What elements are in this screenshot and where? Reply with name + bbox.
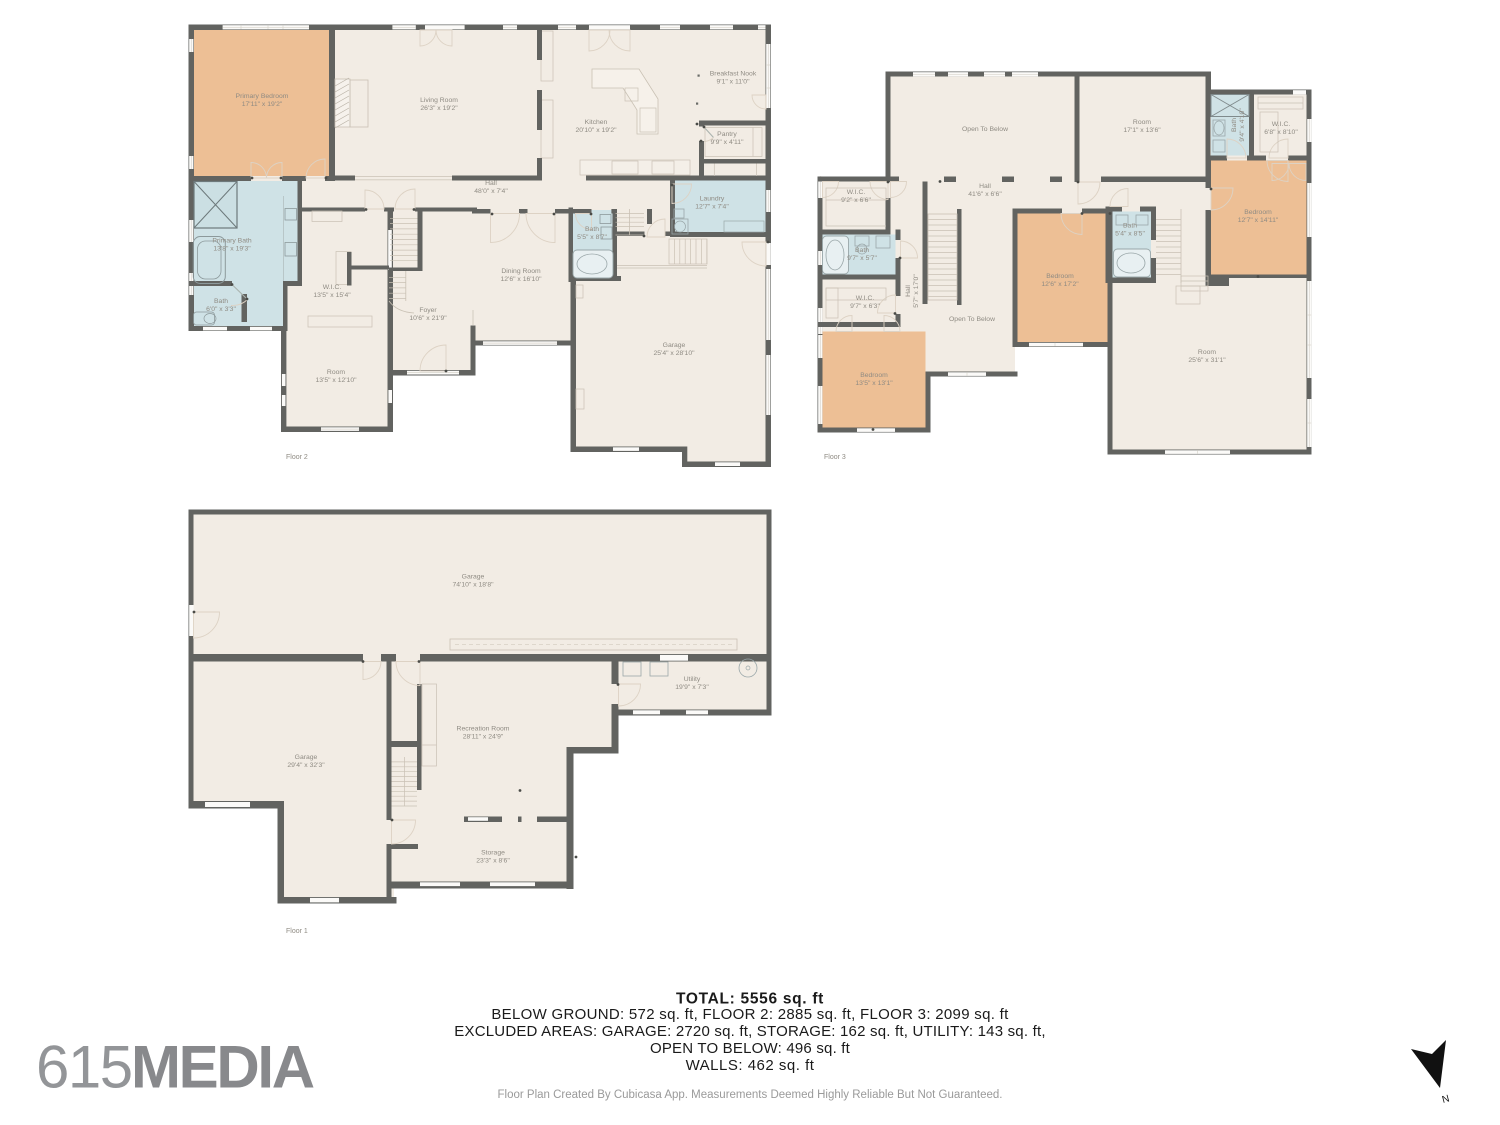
svg-text:Laundry12'7" x 7'4": Laundry12'7" x 7'4" [695, 196, 729, 211]
svg-text:EXCLUDED AREAS: GARAGE: 2720 s: EXCLUDED AREAS: GARAGE: 2720 sq. ft, STO… [454, 1023, 1045, 1040]
svg-text:Dining Room12'6" x 16'10": Dining Room12'6" x 16'10" [500, 268, 542, 283]
svg-text:Recreation Room28'11" x 24'9": Recreation Room28'11" x 24'9" [457, 726, 510, 741]
svg-text:MEDIA: MEDIA [131, 1034, 314, 1101]
svg-text:Living Room26'3" x 19'2": Living Room26'3" x 19'2" [420, 97, 458, 112]
svg-text:Open To Below: Open To Below [949, 316, 995, 323]
svg-text:Open To Below: Open To Below [962, 126, 1008, 133]
svg-text:Primary Bath13'8" x 19'3": Primary Bath13'8" x 19'3" [212, 238, 252, 253]
svg-text:Floor Plan Created By Cubicasa: Floor Plan Created By Cubicasa App. Meas… [498, 1089, 1003, 1101]
svg-text:TOTAL: 5556 sq. ft: TOTAL: 5556 sq. ft [676, 991, 824, 1008]
svg-text:OPEN TO BELOW: 496 sq. ft: OPEN TO BELOW: 496 sq. ft [650, 1040, 851, 1057]
svg-text:BELOW GROUND: 572 sq. ft, FLOO: BELOW GROUND: 572 sq. ft, FLOOR 2: 2885 … [491, 1006, 1009, 1023]
svg-text:Floor 3: Floor 3 [824, 454, 846, 461]
svg-text:Bedroom13'5" x 13'1": Bedroom13'5" x 13'1" [855, 372, 893, 387]
svg-text:Floor 2: Floor 2 [286, 454, 308, 461]
svg-text:Floor 1: Floor 1 [286, 928, 308, 935]
svg-text:WALLS: 462 sq. ft: WALLS: 462 sq. ft [686, 1057, 815, 1074]
svg-text:615: 615 [36, 1034, 132, 1101]
svg-text:Primary Bedroom17'11" x 19'2": Primary Bedroom17'11" x 19'2" [236, 93, 289, 108]
svg-text:Bedroom12'6" x 17'2": Bedroom12'6" x 17'2" [1041, 273, 1079, 288]
